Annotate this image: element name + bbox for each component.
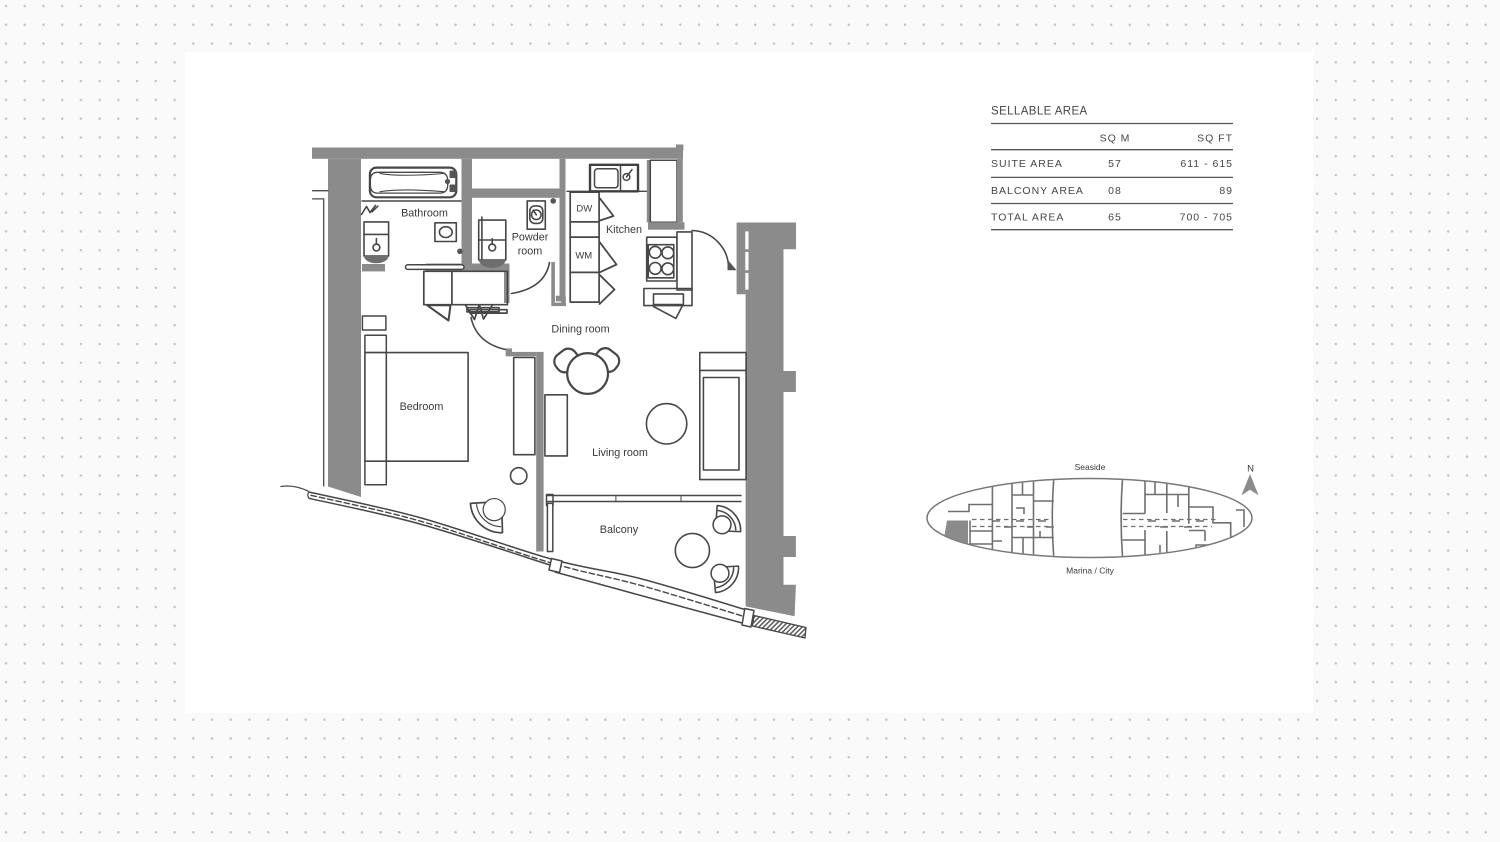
svg-text:Bathroom: Bathroom xyxy=(401,208,448,220)
svg-text:SQ M: SQ M xyxy=(1100,133,1131,145)
svg-text:08: 08 xyxy=(1108,185,1122,197)
svg-text:SELLABLE AREA: SELLABLE AREA xyxy=(991,106,1088,118)
svg-text:room: room xyxy=(518,246,543,258)
svg-text:SUITE AREA: SUITE AREA xyxy=(991,158,1063,170)
svg-text:Marina / City: Marina / City xyxy=(1066,566,1114,576)
svg-text:Kitchen: Kitchen xyxy=(606,224,642,236)
svg-text:SQ FT: SQ FT xyxy=(1197,133,1233,145)
svg-text:65: 65 xyxy=(1108,212,1122,224)
svg-text:BALCONY AREA: BALCONY AREA xyxy=(991,185,1084,197)
svg-text:700 - 705: 700 - 705 xyxy=(1180,212,1233,224)
svg-text:DW: DW xyxy=(576,204,592,215)
svg-text:89: 89 xyxy=(1219,185,1233,197)
svg-text:Dining room: Dining room xyxy=(551,324,609,336)
svg-text:Balcony: Balcony xyxy=(600,524,639,536)
svg-text:TOTAL AREA: TOTAL AREA xyxy=(991,212,1064,224)
svg-text:Powder: Powder xyxy=(512,232,549,244)
svg-text:Bedroom: Bedroom xyxy=(400,401,444,413)
svg-text:N: N xyxy=(1247,464,1254,475)
svg-text:Seaside: Seaside xyxy=(1075,462,1106,472)
svg-text:57: 57 xyxy=(1108,158,1122,170)
svg-text:Living room: Living room xyxy=(592,447,648,459)
svg-text:WM: WM xyxy=(575,251,592,262)
svg-text:611 - 615: 611 - 615 xyxy=(1180,158,1233,170)
